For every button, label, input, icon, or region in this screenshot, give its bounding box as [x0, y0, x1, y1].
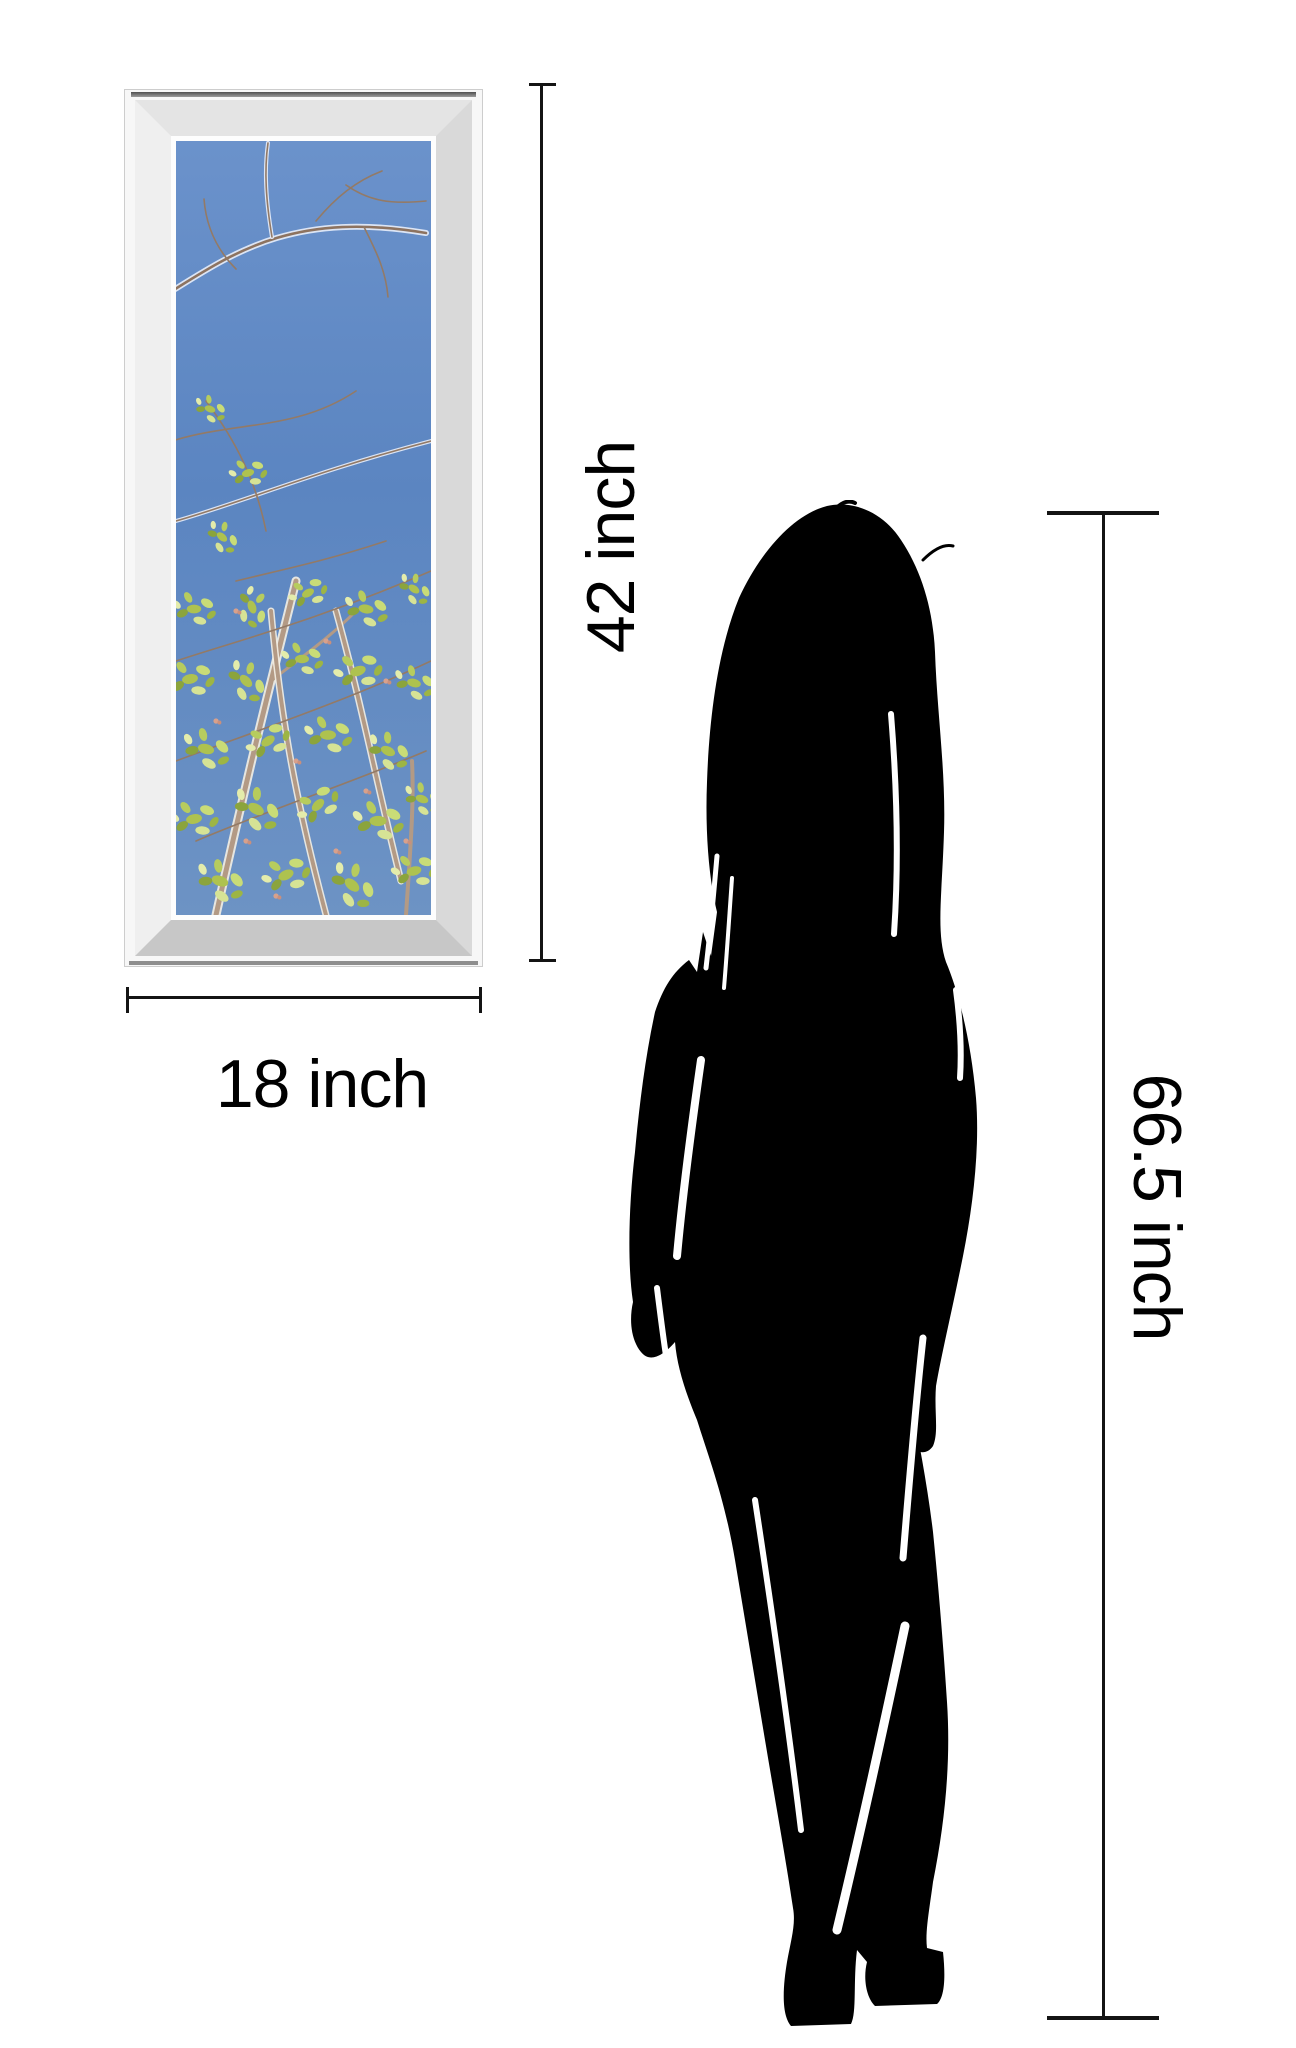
- size-comparison-graphic: 42 inch 18 inch 66.5 inch: [0, 0, 1296, 2048]
- frame-top-edge: [131, 92, 476, 97]
- person-height-bottom-cap: [1047, 2016, 1159, 2020]
- frame-width-right-tick: [479, 987, 482, 1013]
- frame-bottom-edge: [129, 961, 478, 965]
- frame-height-dimension-line: [540, 85, 543, 962]
- frame-inner-lip: [171, 136, 436, 920]
- frame-width-dimension-line: [127, 996, 482, 999]
- person-silhouette: [605, 500, 990, 2030]
- person-height-top-cap: [1047, 511, 1159, 515]
- frame-height-bottom-cap: [529, 959, 556, 962]
- person-height-dimension-line: [1102, 512, 1105, 2020]
- person-height-label: 66.5 inch: [1118, 1074, 1196, 1341]
- frame-height-top-cap: [529, 83, 556, 86]
- frame-width-label: 18 inch: [216, 1045, 428, 1123]
- artwork-image: [176, 141, 431, 915]
- framed-wall-art: [125, 90, 482, 966]
- mirror-bevel-frame: [135, 100, 472, 956]
- frame-width-left-tick: [126, 987, 129, 1013]
